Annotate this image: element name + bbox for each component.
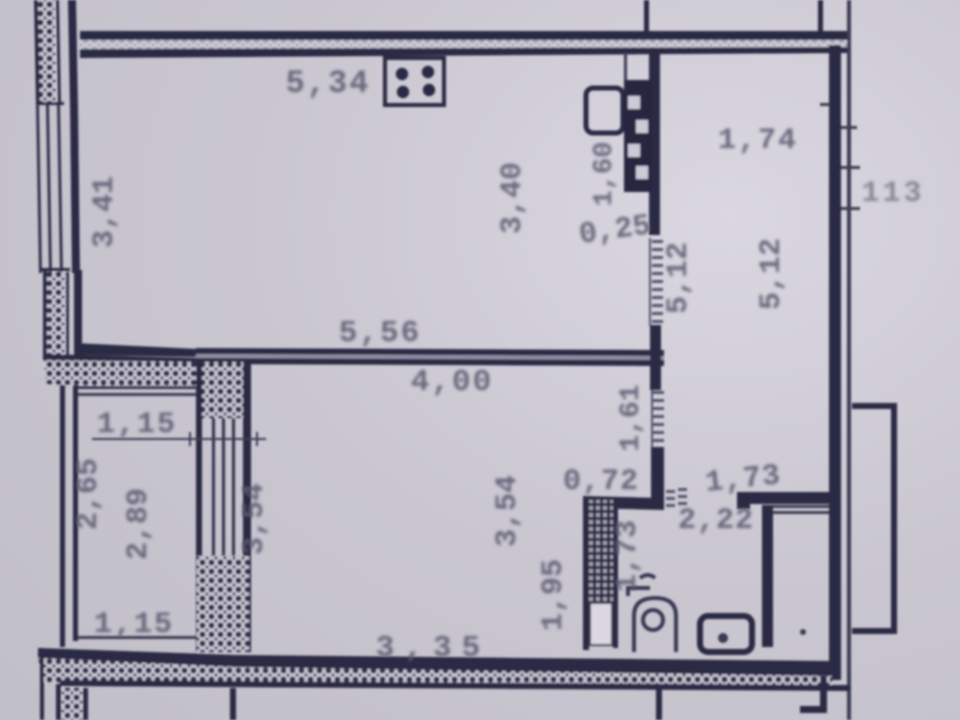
- svg-text:5,12: 5,12: [755, 238, 789, 310]
- svg-text:1,95: 1,95: [537, 559, 571, 631]
- svg-text:5,12: 5,12: [662, 242, 696, 314]
- svg-text:1,15: 1,15: [94, 608, 174, 642]
- svg-text:1,15: 1,15: [97, 408, 177, 442]
- svg-text:1,60: 1,60: [590, 142, 620, 207]
- svg-text:3,35: 3,35: [376, 631, 490, 666]
- svg-text:3,54: 3,54: [491, 475, 525, 547]
- svg-text:2,89: 2,89: [122, 488, 156, 560]
- svg-text:1,61: 1,61: [616, 384, 647, 451]
- svg-text:1,74: 1,74: [718, 124, 798, 158]
- svg-text:113: 113: [861, 177, 924, 211]
- svg-text:5,34: 5,34: [286, 65, 371, 102]
- svg-text:3,54: 3,54: [238, 483, 272, 555]
- svg-text:1,73: 1,73: [611, 520, 645, 592]
- svg-text:4,00: 4,00: [411, 365, 493, 400]
- svg-text:3,40: 3,40: [496, 162, 530, 234]
- svg-text:0,72: 0,72: [563, 465, 639, 499]
- svg-text:2,22: 2,22: [678, 504, 754, 538]
- svg-text:2,65: 2,65: [72, 458, 106, 530]
- svg-text:5,56: 5,56: [339, 316, 421, 351]
- svg-text:0,25: 0,25: [577, 209, 653, 253]
- svg-text:3,41: 3,41: [88, 176, 122, 248]
